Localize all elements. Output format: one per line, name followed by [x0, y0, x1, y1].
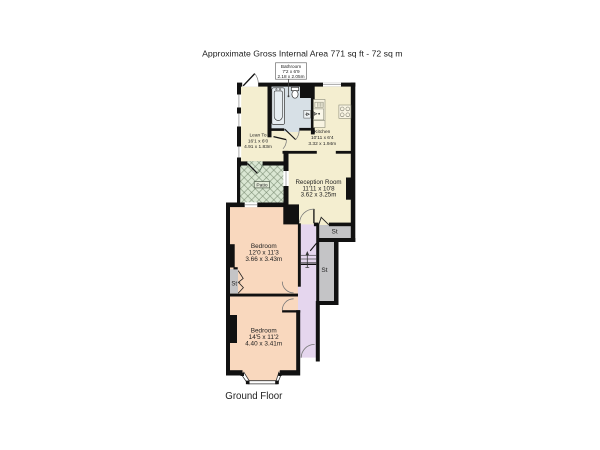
- svg-text:3.66 x 3.43m: 3.66 x 3.43m: [245, 256, 282, 263]
- svg-text:3.32 x 1.94m: 3.32 x 1.94m: [308, 141, 336, 147]
- svg-text:4.91 x 1.83m: 4.91 x 1.83m: [244, 144, 272, 150]
- svg-text:3.62 x 3.25m: 3.62 x 3.25m: [301, 192, 337, 199]
- svg-text:Approximate Gross Internal Are: Approximate Gross Internal Area 771 sq f…: [202, 48, 402, 58]
- svg-text:16'1 x 6'0: 16'1 x 6'0: [248, 138, 269, 144]
- svg-text:St: St: [321, 267, 327, 274]
- svg-text:Patio: Patio: [256, 183, 267, 189]
- svg-text:2.18 x 2.05m: 2.18 x 2.05m: [277, 74, 304, 79]
- svg-text:Ground Floor: Ground Floor: [225, 391, 283, 402]
- svg-text:Lean To: Lean To: [250, 133, 267, 139]
- svg-text:Kitchen: Kitchen: [314, 129, 330, 135]
- svg-text:4.40 x 3.41m: 4.40 x 3.41m: [245, 341, 282, 348]
- svg-text:St: St: [332, 229, 338, 236]
- svg-text:St: St: [231, 281, 237, 287]
- svg-text:10'11 x 6'4: 10'11 x 6'4: [311, 135, 334, 141]
